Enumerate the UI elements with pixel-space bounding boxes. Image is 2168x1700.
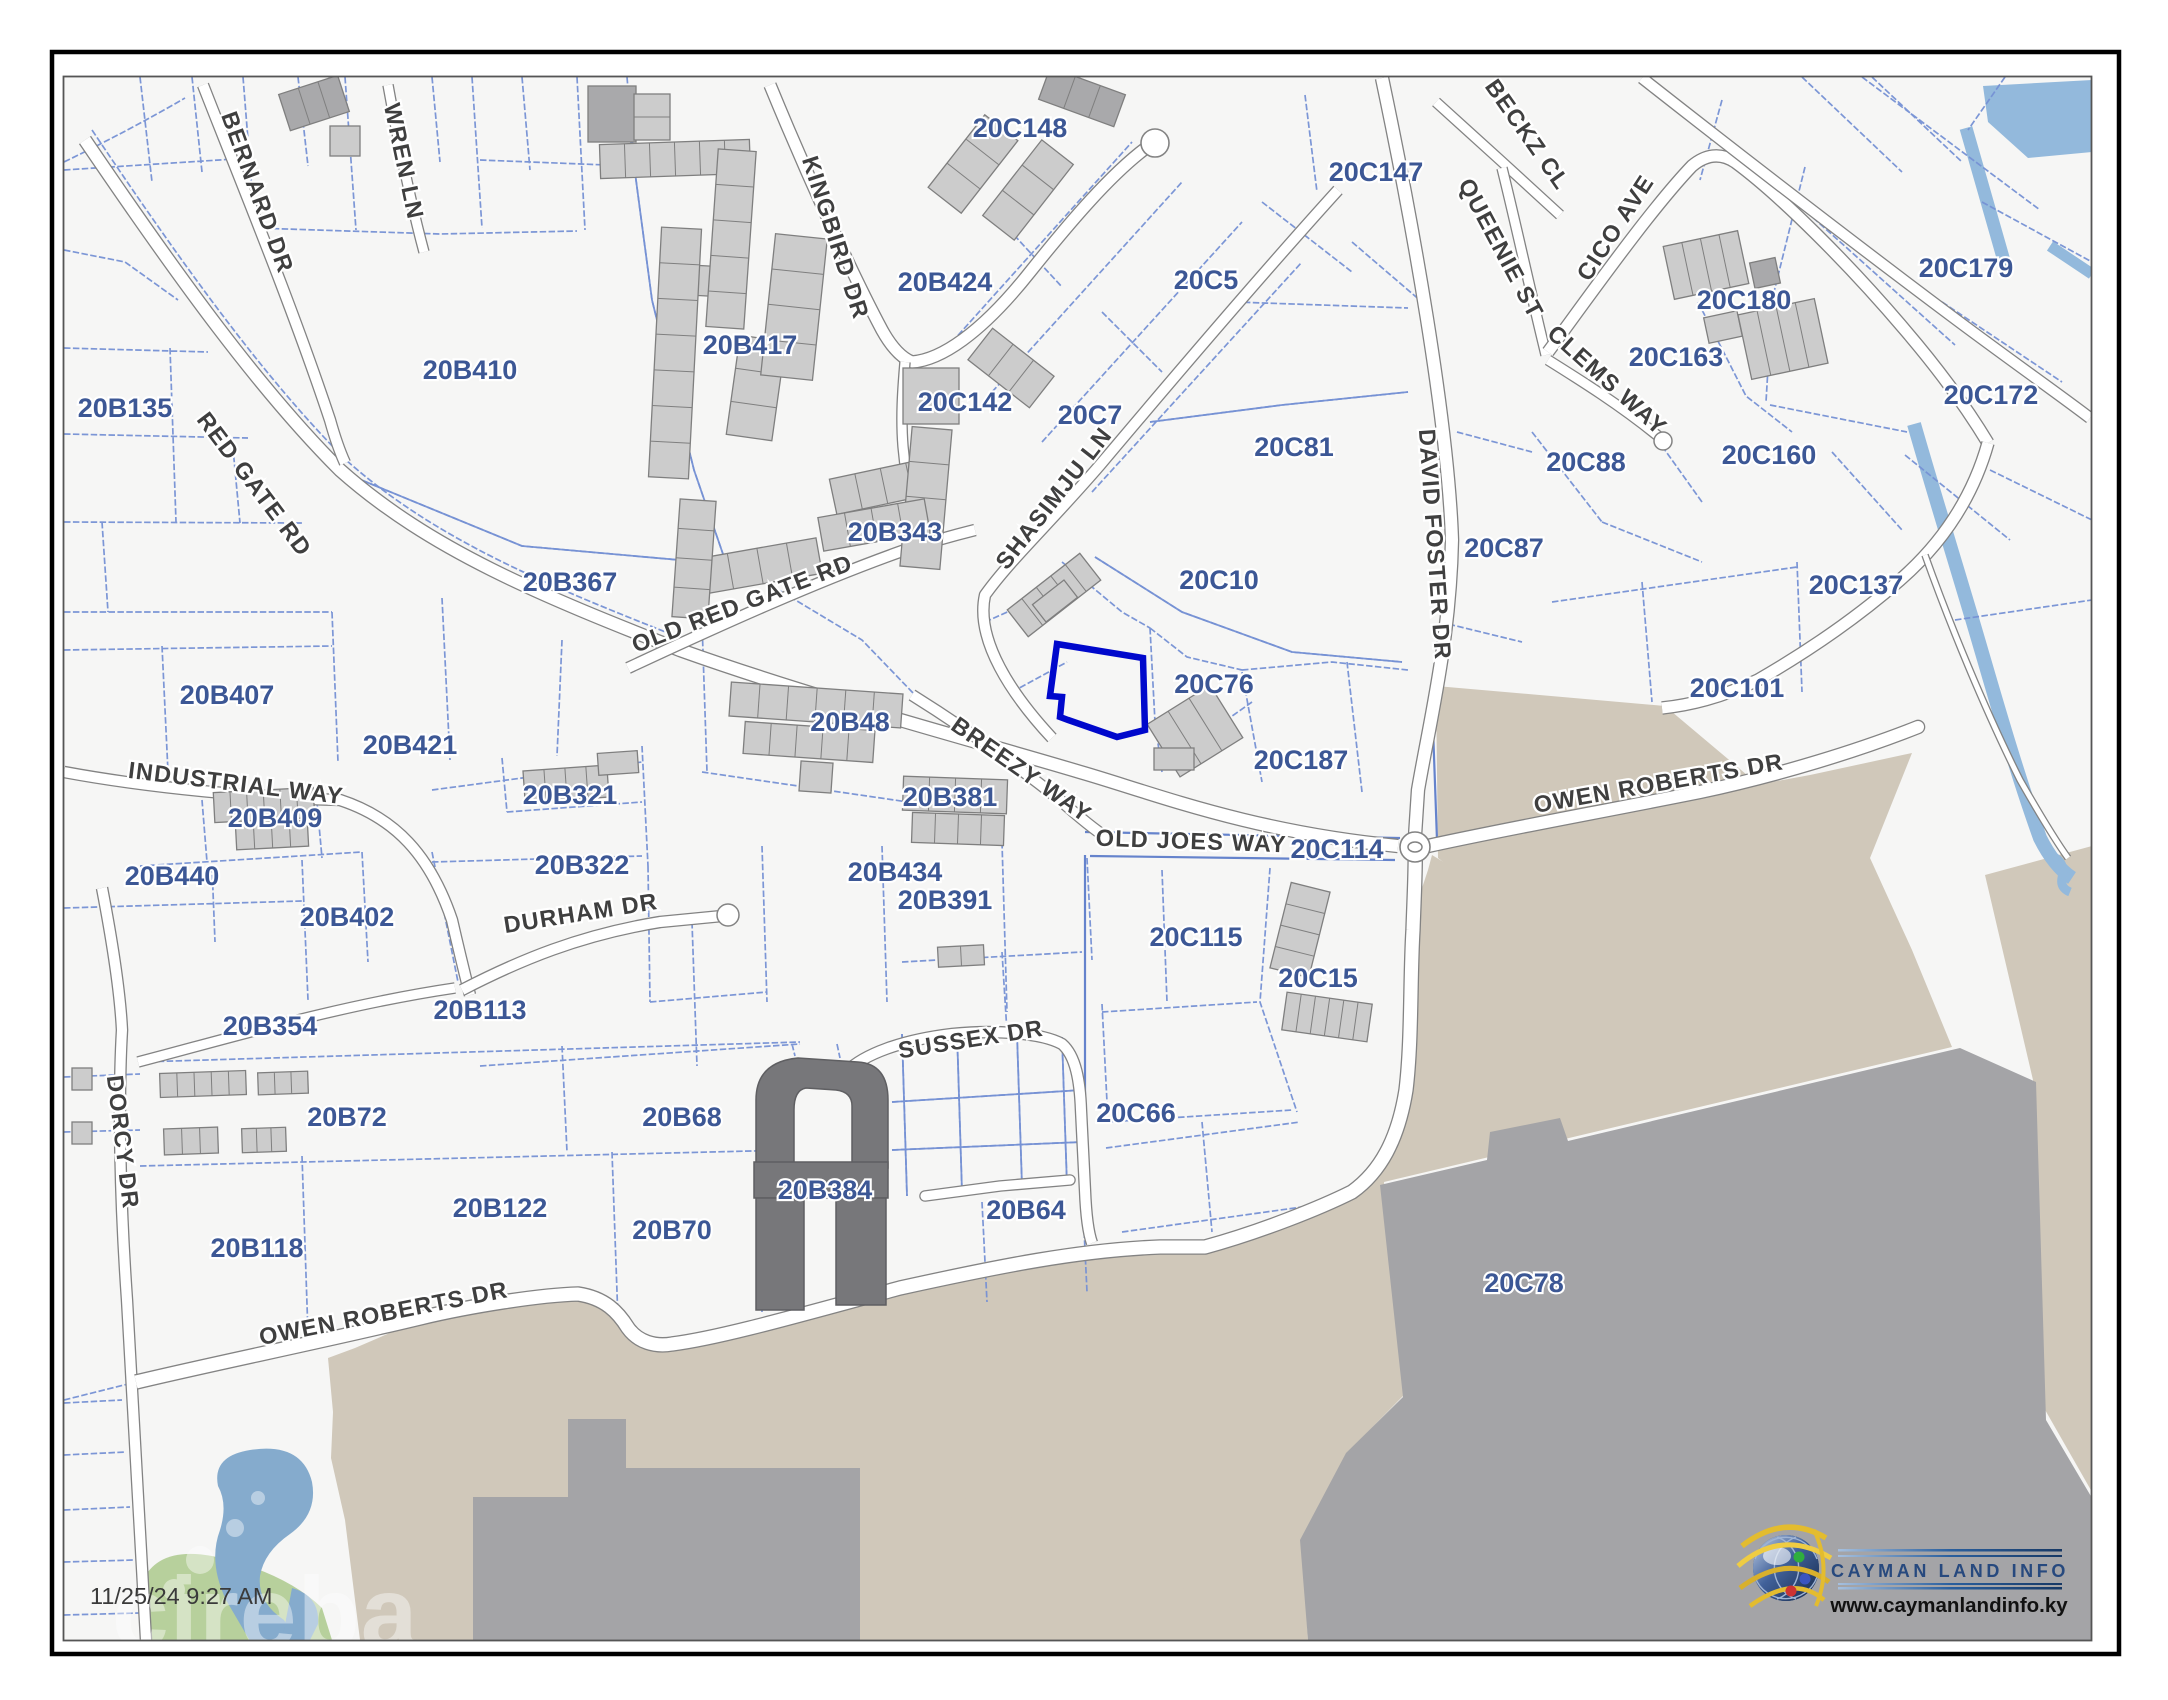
svg-text:20B68: 20B68: [642, 1102, 722, 1132]
svg-text:20C115: 20C115: [1149, 922, 1242, 952]
svg-text:20C7: 20C7: [1058, 400, 1123, 430]
svg-text:20C81: 20C81: [1254, 432, 1334, 462]
svg-text:20B424: 20B424: [898, 267, 993, 297]
svg-text:20B354: 20B354: [223, 1011, 318, 1041]
svg-text:20B402: 20B402: [300, 902, 395, 932]
svg-text:20B135: 20B135: [78, 393, 173, 423]
svg-text:11/25/24 9:27 AM: 11/25/24 9:27 AM: [90, 1583, 272, 1609]
svg-text:20B367: 20B367: [523, 567, 618, 597]
svg-text:www.caymanlandinfo.ky: www.caymanlandinfo.ky: [1829, 1594, 2068, 1617]
svg-text:20C147: 20C147: [1329, 157, 1424, 187]
svg-text:20C160: 20C160: [1722, 440, 1817, 470]
svg-text:20C163: 20C163: [1629, 342, 1724, 372]
svg-text:20B322: 20B322: [535, 850, 630, 880]
svg-text:20B384: 20B384: [778, 1175, 873, 1205]
svg-text:20B113: 20B113: [433, 995, 526, 1025]
svg-text:20B343: 20B343: [848, 517, 943, 547]
svg-text:20B410: 20B410: [423, 355, 518, 385]
svg-text:20B70: 20B70: [632, 1215, 712, 1245]
svg-text:20C76: 20C76: [1174, 669, 1254, 699]
svg-text:20C10: 20C10: [1179, 565, 1259, 595]
svg-text:20C172: 20C172: [1944, 380, 2039, 410]
svg-text:20B381: 20B381: [903, 782, 998, 812]
svg-text:20C179: 20C179: [1919, 253, 2014, 283]
svg-text:20B72: 20B72: [307, 1102, 387, 1132]
svg-text:20C187: 20C187: [1254, 745, 1349, 775]
svg-text:20B434: 20B434: [848, 857, 943, 887]
svg-text:20C180: 20C180: [1697, 285, 1792, 315]
svg-text:20B64: 20B64: [986, 1195, 1066, 1225]
svg-text:20C5: 20C5: [1174, 265, 1239, 295]
svg-text:20C114: 20C114: [1290, 834, 1383, 864]
svg-text:20C78: 20C78: [1484, 1268, 1564, 1298]
svg-text:20C101: 20C101: [1690, 673, 1785, 703]
svg-text:20C15: 20C15: [1278, 963, 1358, 993]
svg-text:20B118: 20B118: [210, 1233, 303, 1263]
svg-text:CAYMAN LAND INFO: CAYMAN LAND INFO: [1831, 1561, 2069, 1581]
svg-text:20B391: 20B391: [898, 885, 993, 915]
svg-text:20B409: 20B409: [228, 803, 323, 833]
svg-text:20B440: 20B440: [125, 861, 220, 891]
svg-text:20B407: 20B407: [180, 680, 275, 710]
svg-text:20C87: 20C87: [1464, 533, 1544, 563]
svg-text:20C137: 20C137: [1809, 570, 1904, 600]
svg-text:20B421: 20B421: [363, 730, 458, 760]
svg-text:20B321: 20B321: [523, 780, 618, 810]
svg-text:20C142: 20C142: [918, 387, 1013, 417]
svg-text:20C66: 20C66: [1096, 1098, 1176, 1128]
svg-text:20B417: 20B417: [703, 330, 798, 360]
svg-text:20B48: 20B48: [810, 707, 890, 737]
svg-text:20C88: 20C88: [1546, 447, 1626, 477]
svg-text:20B122: 20B122: [453, 1193, 548, 1223]
svg-text:20C148: 20C148: [973, 113, 1068, 143]
